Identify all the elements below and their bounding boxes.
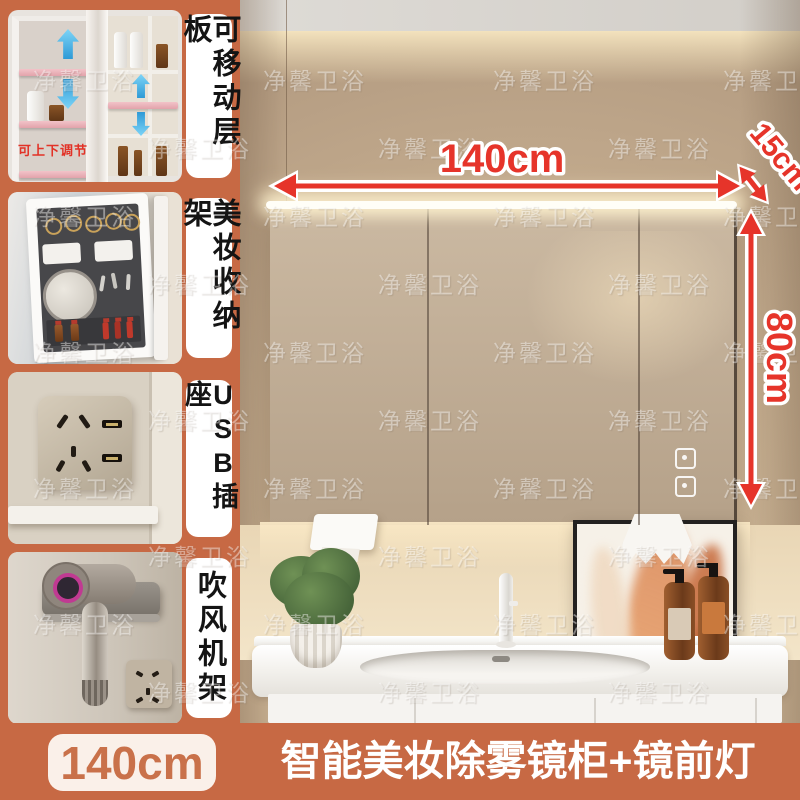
usb-port-icon: [102, 454, 122, 462]
bottom-shelf: [46, 315, 141, 346]
storage-tray: [94, 240, 133, 262]
feature-photo-usb-socket: [8, 372, 182, 544]
socket-hole: [56, 414, 69, 429]
scissors: [111, 273, 118, 289]
shelf-divider: [108, 134, 178, 138]
height-dimension-label: 80cm: [759, 312, 800, 404]
jewelry-ring: [123, 213, 141, 231]
makeup-brush: [134, 150, 142, 176]
wall-socket: [126, 660, 172, 708]
white-shelf: [8, 506, 158, 524]
lipstick: [102, 322, 109, 339]
socket-hole: [135, 697, 143, 704]
socket-hole: [78, 414, 91, 429]
product-title: 智能美妆除雾镜柜+镜前灯: [248, 723, 788, 800]
tweezer: [99, 275, 105, 291]
toiletry-bottle: [27, 91, 44, 121]
feature-label-text: 可移动层板: [180, 14, 238, 178]
lipstick: [114, 322, 121, 339]
jewelry-ring: [105, 212, 123, 230]
cabinet-door-edge: [86, 10, 108, 182]
feature-label-text: USB插座: [182, 380, 236, 537]
hair-dryer-grip: [82, 680, 108, 706]
feature-label-makeup-storage: 美妆收纳架: [186, 198, 232, 358]
toiletry-jar: [49, 105, 64, 121]
socket-hole: [135, 671, 143, 678]
feature-label-text: 吹风机架: [195, 570, 224, 706]
shelf-divider: [108, 70, 178, 74]
size-badge: 140cm: [48, 734, 216, 791]
open-cabinet-door: [26, 193, 156, 363]
wall-socket-plate: [38, 396, 132, 490]
jewelry-ring: [45, 217, 63, 235]
makeup-brush: [118, 146, 128, 176]
pink-shelf: [19, 69, 93, 76]
perfume-bottle: [156, 44, 168, 68]
hair-dryer-face: [42, 562, 90, 610]
dimension-annotations: 140cm 15cm 80cm: [240, 0, 800, 723]
footer-banner: 140cm 智能美妆除雾镜柜+镜前灯: [0, 723, 800, 800]
product-image: 可上下调节 可移动层板: [0, 0, 800, 800]
storage-tray: [42, 243, 81, 265]
feature-photo-makeup-storage: [8, 192, 182, 364]
feature-photo-hair-dryer-rack: [8, 552, 182, 724]
up-arrow-icon: [57, 29, 79, 59]
socket-hole: [81, 460, 91, 473]
shelf-adjust-note: 可上下调节: [18, 140, 88, 159]
storage-panel: [36, 203, 145, 352]
usb-port-icon: [102, 420, 122, 428]
brush: [126, 274, 131, 290]
perfume-bottle: [156, 146, 167, 176]
pink-shelf: [19, 171, 93, 178]
feature-label-text: 美妆收纳架: [180, 198, 238, 358]
socket-hole: [151, 671, 159, 678]
feature-label-hair-dryer-rack: 吹风机架: [186, 558, 232, 718]
jewelry-ring: [85, 215, 103, 233]
pink-shelf: [108, 102, 178, 109]
perfume-mini: [70, 324, 79, 341]
feature-photo-movable-shelf: 可上下调节: [8, 10, 182, 182]
socket-hole: [151, 697, 159, 704]
socket-hole: [146, 688, 150, 695]
round-mirror: [42, 268, 99, 325]
cabinet-shelf-edge: [154, 196, 168, 360]
width-dimension-label: 140cm: [440, 137, 565, 181]
cosmetic-box: [130, 32, 143, 68]
cabinet-interior-right: [108, 16, 178, 176]
socket-hole: [55, 460, 65, 473]
jewelry-ring: [65, 214, 83, 232]
lipstick: [126, 321, 133, 338]
pink-shelf: [19, 121, 93, 128]
feature-label-usb-socket: USB插座: [186, 380, 232, 537]
shelf-divider: [148, 16, 152, 176]
perfume-mini: [54, 325, 63, 342]
cosmetic-box: [114, 32, 127, 68]
socket-hole: [71, 446, 76, 457]
feature-label-movable-shelf: 可移动层板: [186, 14, 232, 178]
